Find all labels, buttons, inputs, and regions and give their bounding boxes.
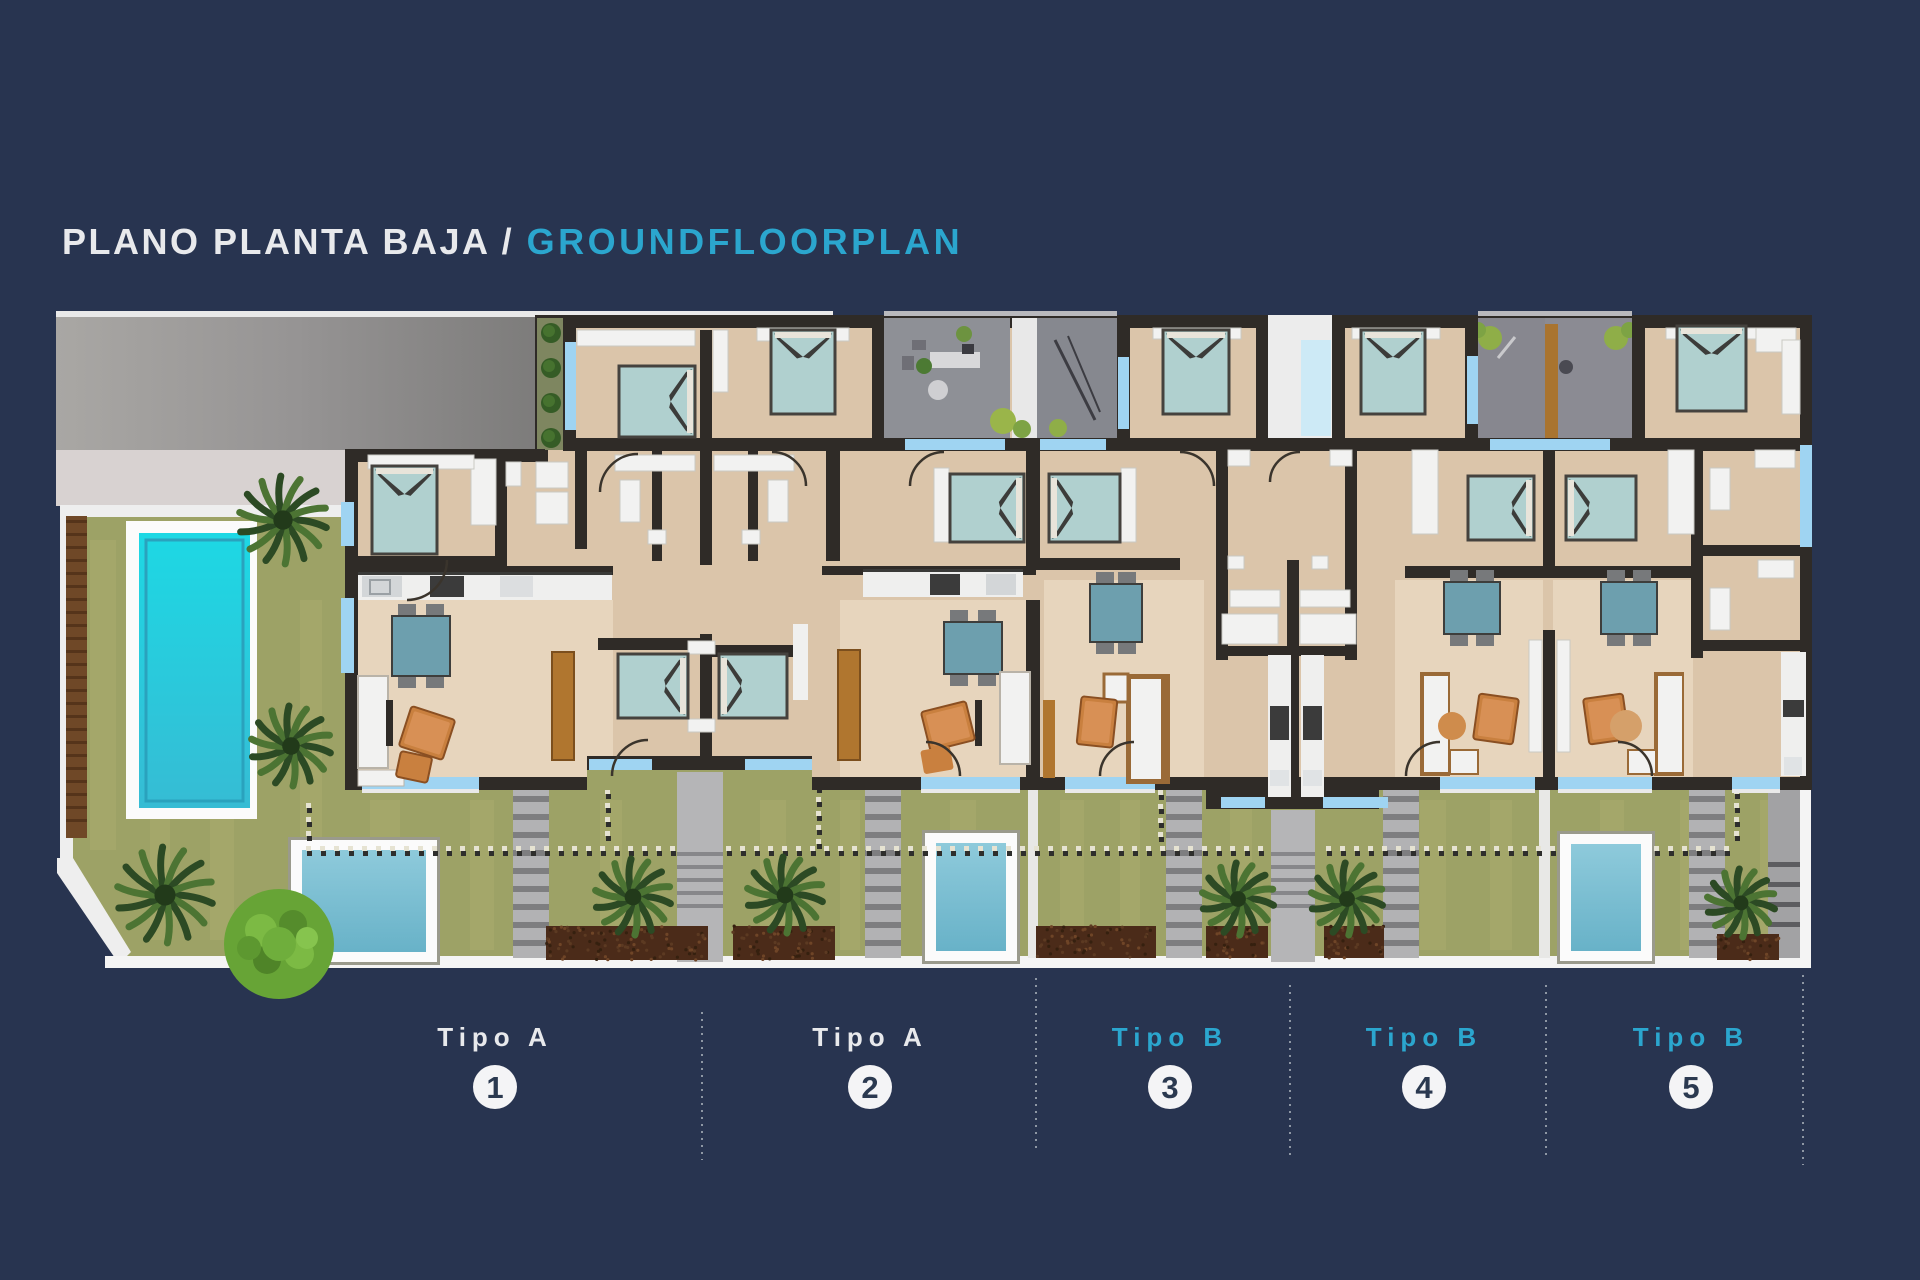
svg-text:1: 1 <box>486 1070 503 1105</box>
svg-text:Tipo A: Tipo A <box>812 1022 927 1052</box>
svg-text:5: 5 <box>1682 1070 1699 1105</box>
svg-text:Tipo B: Tipo B <box>1366 1022 1482 1052</box>
svg-text:Tipo B: Tipo B <box>1112 1022 1228 1052</box>
svg-text:4: 4 <box>1415 1070 1433 1105</box>
svg-text:Tipo A: Tipo A <box>437 1022 552 1052</box>
svg-text:Tipo B: Tipo B <box>1633 1022 1749 1052</box>
svg-text:3: 3 <box>1161 1070 1178 1105</box>
svg-text:2: 2 <box>861 1070 878 1105</box>
